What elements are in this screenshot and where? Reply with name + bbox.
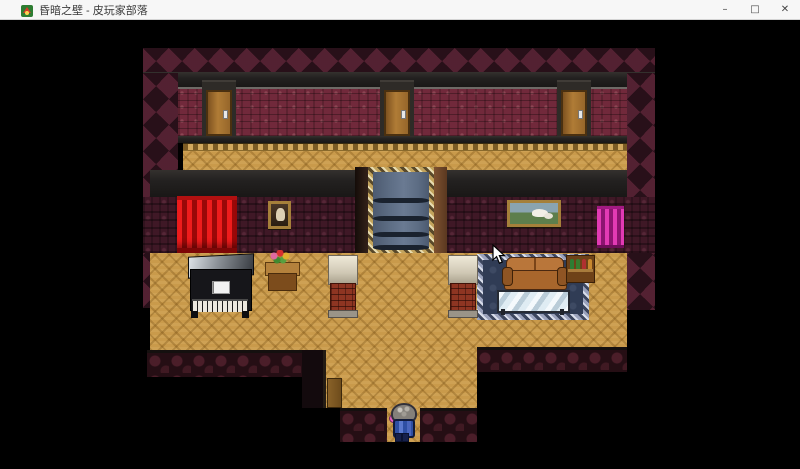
bottom-wall-right — [477, 347, 627, 372]
portrait-canvas — [271, 204, 288, 226]
table-leg — [560, 309, 564, 315]
wall-trim-mid — [178, 136, 627, 143]
flower-table[interactable] — [265, 260, 298, 290]
player-character[interactable] — [390, 403, 414, 442]
character-leg — [395, 433, 402, 442]
upper-floor-ornate-border — [183, 143, 627, 151]
stair-step — [373, 216, 429, 221]
red-curtain — [177, 196, 237, 253]
staircase[interactable] — [355, 167, 447, 253]
stair-pillar-left — [355, 167, 368, 253]
portrait-painting — [268, 201, 291, 229]
window-controls: – □ ✕ — [710, 0, 800, 20]
minimize-button[interactable]: – — [710, 0, 740, 20]
stair-carpet-frame — [368, 167, 434, 253]
sofa-arm — [502, 267, 513, 286]
close-button[interactable]: ✕ — [770, 0, 800, 20]
bottle-green — [576, 259, 580, 269]
magenta-curtain — [597, 206, 624, 248]
mouse-cursor — [492, 244, 506, 265]
table-body — [268, 273, 297, 291]
piano-foot — [242, 311, 249, 318]
rpg-game-icon — [21, 5, 33, 17]
piano-foot — [191, 311, 198, 318]
door-left[interactable] — [206, 90, 232, 136]
bottle-green — [570, 259, 574, 269]
brick-pillar-left — [328, 255, 356, 318]
stair-carpet — [373, 172, 429, 248]
game-viewport[interactable] — [0, 20, 800, 469]
brick-pillar-right — [448, 255, 476, 318]
upright-piano[interactable] — [188, 255, 252, 318]
corridor-wall-right — [420, 408, 477, 442]
glass-table — [497, 290, 568, 315]
flower-vase — [270, 250, 292, 264]
pillar-cap — [328, 255, 358, 285]
piano-keys — [192, 299, 248, 312]
floor-center-column — [323, 350, 477, 408]
window-title: 昏暗之壁 - 皮玩家部落 — [39, 2, 710, 18]
wall-column-right — [627, 73, 655, 310]
character-leg — [402, 433, 409, 442]
table-leg — [501, 309, 505, 315]
landscape-canvas — [510, 203, 558, 224]
wall-shadow-connector — [302, 350, 323, 408]
bottom-wall-left — [147, 350, 302, 377]
stair-step — [373, 232, 429, 237]
wallpaper-top-band — [143, 48, 655, 73]
app-window: 昏暗之壁 - 皮玩家部落 – □ ✕ — [0, 0, 800, 469]
pillar-base — [328, 310, 358, 318]
maximize-button[interactable]: □ — [740, 0, 770, 20]
stair-pillar-right — [434, 167, 447, 253]
stair-step — [373, 198, 429, 203]
stair-step — [373, 245, 429, 250]
corridor-wall-left — [340, 408, 387, 442]
door-center[interactable] — [384, 90, 410, 136]
bottle-red — [582, 259, 586, 269]
sheet-music — [212, 281, 230, 294]
door-right[interactable] — [561, 90, 587, 136]
app-icon[interactable] — [21, 4, 33, 16]
landscape-painting — [507, 200, 561, 227]
pillar-base — [448, 310, 478, 318]
pillar-cap — [448, 255, 478, 285]
bottle-shelf[interactable] — [566, 255, 595, 283]
title-bar: 昏暗之壁 - 皮玩家部落 – □ ✕ — [0, 0, 800, 20]
bottle-amber — [588, 259, 592, 269]
wooden-step — [327, 378, 342, 408]
